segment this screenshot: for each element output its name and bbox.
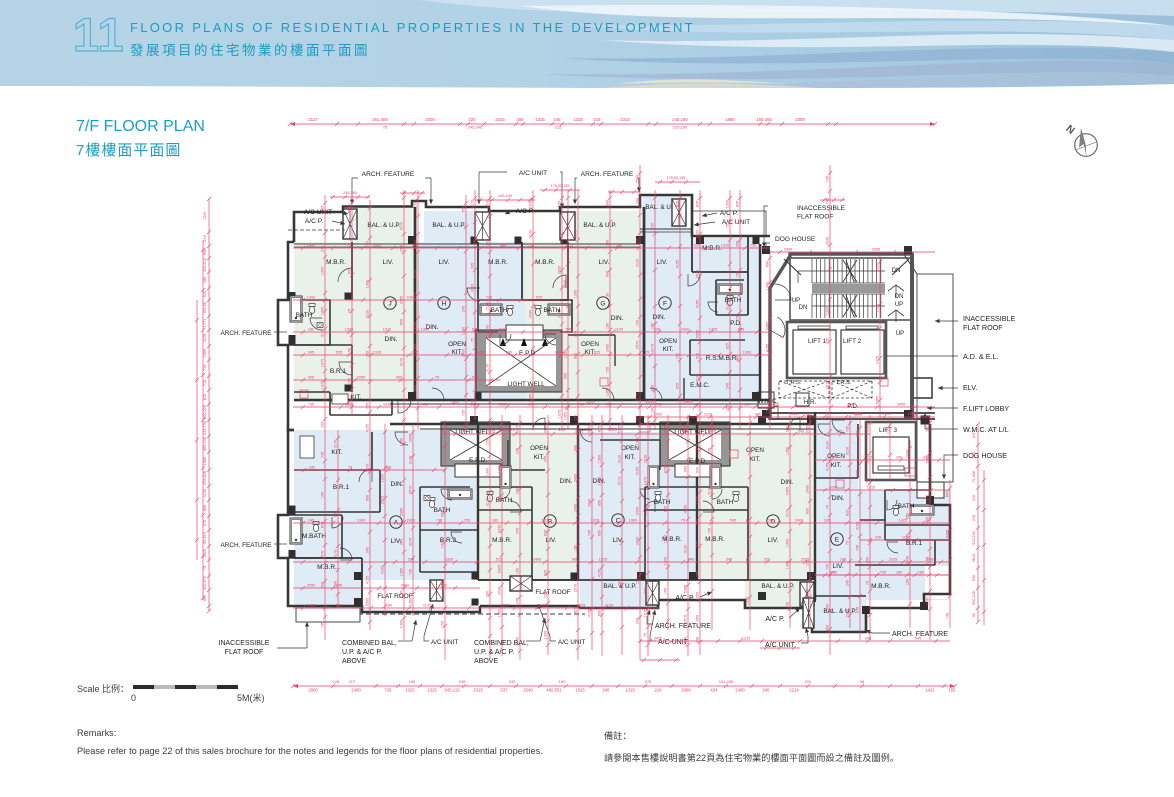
- svg-text:1350: 1350: [866, 557, 870, 565]
- svg-text:275: 275: [645, 679, 652, 684]
- svg-text:2080: 2080: [804, 413, 812, 417]
- svg-text:245: 245: [409, 679, 416, 684]
- svg-text:75: 75: [471, 338, 475, 342]
- svg-text:3455: 3455: [771, 403, 779, 407]
- svg-text:150: 150: [574, 545, 578, 551]
- svg-text:ARCH. FEATURE: ARCH. FEATURE: [581, 171, 634, 178]
- svg-text:1075: 1075: [926, 495, 930, 503]
- svg-text:545: 545: [472, 376, 478, 380]
- svg-text:3120: 3120: [486, 240, 490, 248]
- svg-text:75: 75: [846, 541, 850, 545]
- svg-text:1300: 1300: [636, 437, 640, 445]
- svg-text:3170: 3170: [334, 440, 338, 448]
- svg-text:1350: 1350: [926, 597, 930, 605]
- svg-text:A.D. & E.L.: A.D. & E.L.: [963, 352, 999, 361]
- svg-text:A/C P.: A/C P.: [720, 210, 738, 217]
- svg-text:525: 525: [606, 403, 612, 407]
- svg-text:180: 180: [308, 328, 314, 332]
- svg-text:2400: 2400: [856, 470, 860, 478]
- svg-text:537: 537: [500, 688, 508, 693]
- svg-text:1300: 1300: [381, 474, 385, 482]
- svg-text:310,410: 310,410: [203, 258, 207, 272]
- svg-text:545: 545: [472, 328, 478, 332]
- svg-text:735: 735: [409, 569, 413, 575]
- svg-text:150: 150: [636, 578, 640, 584]
- svg-text:2400: 2400: [471, 403, 479, 407]
- svg-text:75: 75: [866, 581, 870, 585]
- svg-text:525: 525: [836, 430, 842, 434]
- svg-text:2570: 2570: [636, 175, 640, 183]
- svg-text:2315: 2315: [473, 688, 483, 693]
- svg-text:3455: 3455: [897, 403, 905, 407]
- svg-text:735: 735: [528, 244, 534, 248]
- svg-text:5365: 5365: [766, 322, 770, 330]
- svg-text:LIV.: LIV.: [833, 563, 844, 570]
- svg-text:DOG HOUSE: DOG HOUSE: [775, 236, 816, 243]
- svg-text:735: 735: [856, 545, 860, 551]
- svg-text:245: 245: [654, 328, 660, 332]
- svg-text:2400: 2400: [462, 349, 466, 357]
- svg-text:5365: 5365: [498, 565, 502, 573]
- svg-text:825: 825: [708, 448, 712, 454]
- svg-text:261,408: 261,408: [372, 117, 388, 122]
- svg-text:R.S.M.B.R.: R.S.M.B.R.: [706, 355, 739, 362]
- svg-text:960: 960: [396, 376, 402, 380]
- svg-text:515: 515: [203, 291, 207, 297]
- svg-text:960: 960: [528, 403, 534, 407]
- svg-text:DIN.: DIN.: [560, 478, 573, 485]
- svg-text:3120: 3120: [696, 374, 700, 382]
- svg-text:175,50,135: 175,50,135: [550, 184, 569, 188]
- svg-text:960: 960: [385, 466, 391, 470]
- svg-text:1300: 1300: [629, 519, 637, 523]
- svg-text:245: 245: [471, 263, 475, 269]
- svg-text:2570: 2570: [321, 551, 325, 559]
- svg-text:OPEN: OPEN: [581, 341, 599, 348]
- svg-text:UP: UP: [895, 302, 903, 308]
- svg-text:180: 180: [896, 571, 902, 575]
- svg-text:1300: 1300: [498, 465, 502, 473]
- svg-text:LIV.: LIV.: [599, 259, 610, 266]
- svg-text:150: 150: [414, 201, 418, 207]
- svg-text:150: 150: [866, 426, 870, 432]
- svg-text:1300: 1300: [439, 584, 447, 588]
- svg-text:2030: 2030: [644, 455, 648, 463]
- svg-text:2030: 2030: [696, 230, 700, 238]
- svg-text:4155: 4155: [588, 609, 592, 617]
- svg-text:180: 180: [768, 519, 774, 523]
- svg-text:DIN.: DIN.: [653, 314, 666, 321]
- svg-text:1880: 1880: [725, 117, 735, 122]
- svg-text:3610: 3610: [972, 554, 976, 562]
- svg-text:2400: 2400: [516, 637, 520, 645]
- svg-text:150: 150: [736, 271, 740, 277]
- svg-text:3170: 3170: [786, 509, 790, 517]
- svg-text:1075: 1075: [321, 381, 325, 389]
- svg-text:1125: 1125: [203, 334, 207, 342]
- svg-text:4155: 4155: [636, 393, 640, 401]
- svg-text:2570: 2570: [381, 496, 385, 504]
- svg-text:2400: 2400: [574, 504, 578, 512]
- svg-text:825: 825: [544, 530, 548, 536]
- svg-text:735: 735: [656, 403, 662, 407]
- svg-text:1120: 1120: [203, 489, 207, 497]
- svg-text:FLAT ROOF: FLAT ROOF: [535, 589, 570, 596]
- svg-text:BATH: BATH: [296, 312, 313, 319]
- svg-text:905: 905: [422, 403, 428, 407]
- svg-text:735: 735: [826, 176, 830, 182]
- svg-text:245,245: 245,245: [498, 194, 512, 198]
- svg-text:3455: 3455: [450, 400, 460, 405]
- svg-text:245: 245: [308, 519, 314, 523]
- svg-text:1120: 1120: [615, 328, 623, 332]
- svg-text:900: 900: [606, 271, 610, 277]
- svg-text:225,625: 225,625: [203, 471, 207, 485]
- svg-text:DIN.: DIN.: [832, 495, 845, 502]
- svg-text:INACCESSIBLE: INACCESSIBLE: [219, 640, 270, 647]
- svg-text:2030: 2030: [498, 425, 502, 433]
- svg-text:3120: 3120: [366, 310, 370, 318]
- svg-text:825: 825: [736, 201, 740, 207]
- svg-text:650: 650: [651, 385, 655, 391]
- svg-text:1300: 1300: [400, 620, 404, 628]
- svg-text:245,700: 245,700: [203, 421, 207, 435]
- svg-text:75: 75: [435, 376, 439, 380]
- svg-text:1300: 1300: [606, 200, 610, 208]
- svg-text:735: 735: [321, 622, 325, 628]
- svg-text:245: 245: [400, 539, 404, 545]
- svg-text:245,245: 245,245: [468, 125, 483, 130]
- svg-text:825: 825: [696, 541, 700, 547]
- svg-text:F.LIFT LOBBY: F.LIFT LOBBY: [963, 404, 1009, 413]
- svg-text:735: 735: [880, 571, 886, 575]
- svg-text:2030: 2030: [826, 237, 830, 245]
- svg-text:650: 650: [946, 491, 950, 497]
- svg-text:1350: 1350: [409, 598, 413, 606]
- svg-text:5365: 5365: [946, 530, 950, 538]
- svg-text:3170: 3170: [588, 425, 592, 433]
- svg-text:A/C P.: A/C P.: [305, 218, 323, 225]
- svg-text:1075: 1075: [558, 410, 562, 418]
- svg-text:1075: 1075: [574, 230, 578, 238]
- svg-text:150: 150: [636, 416, 640, 422]
- svg-text:245: 245: [856, 607, 860, 613]
- svg-text:M.B.R.: M.B.R.: [326, 259, 346, 266]
- svg-text:725: 725: [384, 688, 392, 693]
- svg-text:525: 525: [764, 558, 770, 562]
- svg-text:G: G: [600, 300, 605, 307]
- svg-text:201: 201: [805, 679, 812, 684]
- svg-text:545: 545: [730, 519, 736, 523]
- svg-text:DIN.: DIN.: [611, 315, 624, 322]
- svg-text:T.R.S.: T.R.S.: [786, 380, 802, 386]
- svg-text:KIT.: KIT.: [663, 346, 674, 353]
- svg-text:75: 75: [203, 566, 207, 570]
- svg-text:175,50,135: 175,50,135: [666, 176, 685, 180]
- svg-text:150: 150: [606, 323, 610, 329]
- svg-text:245: 245: [726, 383, 730, 389]
- svg-text:200: 200: [736, 241, 740, 247]
- svg-text:1060: 1060: [203, 349, 207, 357]
- svg-text:1315: 1315: [577, 604, 585, 608]
- svg-text:245: 245: [516, 528, 520, 534]
- svg-text:3170: 3170: [486, 364, 490, 372]
- svg-text:1120: 1120: [704, 413, 712, 417]
- svg-text:795: 795: [883, 411, 891, 416]
- svg-text:735: 735: [588, 530, 592, 536]
- svg-text:BAL. & U.: BAL. & U.: [645, 204, 672, 211]
- svg-text:735: 735: [558, 201, 562, 207]
- svg-text:1300: 1300: [486, 468, 490, 476]
- svg-text:910,230: 910,230: [972, 531, 976, 545]
- svg-text:2127: 2127: [308, 117, 318, 122]
- svg-text:2400: 2400: [606, 344, 610, 352]
- svg-text:215: 215: [593, 117, 601, 122]
- svg-text:180: 180: [492, 519, 498, 523]
- svg-text:1325: 1325: [405, 688, 415, 693]
- svg-text:245: 245: [824, 519, 830, 523]
- svg-text:2030: 2030: [906, 450, 910, 458]
- svg-text:735: 735: [846, 426, 850, 432]
- svg-text:1300: 1300: [696, 592, 700, 600]
- svg-text:2030: 2030: [636, 537, 640, 545]
- svg-text:2400: 2400: [574, 474, 578, 482]
- svg-text:4155: 4155: [826, 463, 830, 471]
- svg-text:2030: 2030: [498, 587, 502, 595]
- svg-text:905: 905: [308, 351, 314, 355]
- svg-text:825: 825: [676, 383, 680, 389]
- svg-text:345: 345: [762, 688, 770, 693]
- svg-text:E.P.D.: E.P.D.: [689, 458, 707, 465]
- svg-text:DIN.: DIN.: [385, 336, 398, 343]
- svg-text:1315: 1315: [742, 637, 750, 641]
- svg-text:2570: 2570: [684, 615, 688, 623]
- svg-text:BAL. & U.P.: BAL. & U.P.: [432, 222, 465, 229]
- svg-text:2315: 2315: [620, 117, 630, 122]
- svg-text:2400: 2400: [499, 328, 507, 332]
- svg-text:DIN.: DIN.: [781, 479, 794, 486]
- svg-text:735: 735: [926, 426, 930, 432]
- svg-text:COMBINED BAL,: COMBINED BAL,: [474, 640, 529, 647]
- svg-text:3120: 3120: [846, 447, 850, 455]
- svg-text:150: 150: [321, 492, 325, 498]
- svg-text:245: 245: [516, 448, 520, 454]
- svg-text:545: 545: [336, 604, 342, 608]
- svg-text:1350: 1350: [826, 625, 830, 633]
- svg-text:1803: 1803: [683, 399, 693, 404]
- svg-text:900: 900: [826, 604, 830, 610]
- svg-text:245: 245: [321, 246, 325, 252]
- svg-text:2400: 2400: [407, 296, 415, 300]
- svg-text:735: 735: [464, 519, 470, 523]
- svg-text:4155: 4155: [598, 569, 602, 577]
- svg-text:1300: 1300: [664, 557, 668, 565]
- svg-text:825: 825: [696, 201, 700, 207]
- svg-text:2400: 2400: [806, 485, 810, 493]
- svg-text:F: F: [663, 300, 667, 307]
- svg-text:3170: 3170: [409, 538, 413, 546]
- svg-text:5365: 5365: [684, 585, 688, 593]
- svg-text:BATH: BATH: [898, 503, 915, 510]
- svg-text:M.B.R.: M.B.R.: [702, 245, 722, 252]
- svg-text:4155: 4155: [684, 505, 688, 513]
- svg-text:3170: 3170: [486, 498, 490, 506]
- svg-text:2080: 2080: [681, 688, 691, 693]
- svg-text:245: 245: [896, 456, 902, 460]
- svg-text:1317: 1317: [645, 399, 655, 404]
- svg-text:525: 525: [682, 430, 688, 434]
- svg-text:1350: 1350: [321, 267, 325, 275]
- svg-text:1075: 1075: [321, 359, 325, 367]
- svg-text:E.P.D.: E.P.D.: [469, 457, 487, 464]
- svg-text:600,225: 600,225: [203, 405, 207, 419]
- svg-text:150: 150: [321, 422, 325, 428]
- svg-text:525: 525: [594, 351, 600, 355]
- svg-text:A/C UNIT: A/C UNIT: [558, 639, 585, 646]
- svg-text:650: 650: [696, 615, 700, 621]
- svg-text:3335: 3335: [889, 558, 897, 562]
- svg-text:825: 825: [726, 343, 730, 349]
- svg-text:3120: 3120: [636, 259, 640, 267]
- svg-text:98: 98: [860, 679, 865, 684]
- svg-text:5365: 5365: [786, 487, 790, 495]
- svg-text:T.R.S.: T.R.S.: [836, 380, 852, 386]
- svg-text:1350: 1350: [498, 609, 502, 617]
- svg-text:150: 150: [486, 439, 490, 445]
- svg-text:3170: 3170: [400, 358, 404, 366]
- svg-text:75: 75: [347, 244, 351, 248]
- svg-text:200: 200: [618, 580, 622, 586]
- svg-text:735: 735: [826, 564, 830, 570]
- svg-text:590,245: 590,245: [972, 591, 976, 605]
- svg-text:650: 650: [766, 261, 770, 267]
- svg-text:1425: 1425: [709, 328, 717, 332]
- svg-text:200: 200: [516, 488, 520, 494]
- svg-text:735: 735: [436, 519, 442, 523]
- svg-text:2050: 2050: [307, 584, 315, 588]
- svg-text:3335: 3335: [801, 558, 809, 562]
- svg-text:2000: 2000: [425, 117, 435, 122]
- svg-text:2050: 2050: [654, 413, 662, 417]
- svg-text:2400: 2400: [307, 604, 315, 608]
- svg-text:151,455: 151,455: [719, 679, 734, 684]
- svg-text:4155: 4155: [664, 465, 668, 473]
- svg-text:3335: 3335: [607, 427, 617, 432]
- svg-text:U.P. & A/C P.: U.P. & A/C P.: [342, 649, 382, 656]
- svg-text:100,95: 100,95: [203, 302, 207, 314]
- svg-text:650: 650: [598, 610, 602, 616]
- svg-text:1300: 1300: [366, 280, 370, 288]
- svg-text:150: 150: [400, 591, 404, 597]
- svg-text:905: 905: [412, 244, 418, 248]
- svg-text:5365: 5365: [926, 517, 930, 525]
- svg-text:900: 900: [684, 466, 688, 472]
- svg-text:1350: 1350: [564, 412, 568, 420]
- svg-text:3170: 3170: [726, 302, 730, 310]
- svg-text:825: 825: [598, 426, 602, 432]
- svg-text:M.B.R.: M.B.R.: [488, 259, 508, 266]
- svg-text:3170: 3170: [321, 329, 325, 337]
- svg-text:5365: 5365: [696, 330, 700, 338]
- svg-text:ARCH. FEATURE: ARCH. FEATURE: [220, 542, 271, 549]
- svg-text:2080: 2080: [401, 584, 409, 588]
- svg-text:545: 545: [915, 637, 921, 641]
- svg-text:245: 245: [486, 325, 490, 331]
- svg-text:825: 825: [746, 558, 750, 564]
- svg-text:UP: UP: [896, 331, 904, 337]
- svg-text:3170: 3170: [558, 310, 562, 318]
- svg-text:825: 825: [676, 201, 680, 207]
- svg-text:650: 650: [806, 508, 810, 514]
- svg-text:150,265: 150,265: [756, 117, 772, 122]
- svg-text:OPEN: OPEN: [659, 338, 677, 345]
- svg-text:150: 150: [348, 378, 352, 384]
- svg-text:3170: 3170: [651, 344, 655, 352]
- svg-text:1421: 1421: [925, 688, 935, 693]
- svg-text:1115: 1115: [203, 235, 207, 243]
- svg-text:LIV.: LIV.: [383, 259, 394, 266]
- svg-text:735: 735: [544, 592, 548, 598]
- svg-text:735: 735: [321, 206, 325, 212]
- svg-text:900: 900: [574, 353, 578, 359]
- svg-text:180: 180: [918, 571, 924, 575]
- svg-text:215: 215: [555, 125, 562, 130]
- svg-text:900: 900: [696, 467, 700, 473]
- svg-text:W.M.C. AT L/L: W.M.C. AT L/L: [963, 425, 1009, 434]
- svg-text:FLAT ROOF: FLAT ROOF: [225, 649, 264, 656]
- svg-text:2030: 2030: [696, 270, 700, 278]
- svg-text:1315: 1315: [501, 604, 509, 608]
- svg-text:735: 735: [366, 351, 370, 357]
- svg-text:1350: 1350: [606, 240, 610, 248]
- svg-text:BAL. & U.P.: BAL. & U.P.: [583, 222, 616, 229]
- svg-text:M.B.R.: M.B.R.: [317, 564, 337, 571]
- svg-text:1350: 1350: [400, 438, 404, 446]
- svg-text:75,458: 75,458: [972, 471, 976, 483]
- svg-text:5365: 5365: [348, 205, 352, 213]
- svg-text:200: 200: [636, 198, 640, 204]
- svg-text:1315: 1315: [625, 688, 635, 693]
- svg-text:735: 735: [308, 403, 314, 407]
- svg-text:75: 75: [383, 125, 388, 130]
- svg-text:2400: 2400: [307, 244, 315, 248]
- svg-text:245,180: 245,180: [672, 117, 688, 122]
- svg-text:3120: 3120: [664, 425, 668, 433]
- svg-text:735: 735: [830, 456, 836, 460]
- svg-text:900: 900: [696, 353, 700, 359]
- svg-text:LIV.: LIV.: [768, 537, 779, 544]
- svg-text:BAL. & U.P.: BAL. & U.P.: [367, 222, 400, 229]
- svg-text:4155: 4155: [366, 576, 370, 584]
- svg-text:1075: 1075: [876, 356, 880, 364]
- svg-text:2030: 2030: [588, 499, 592, 507]
- svg-text:525: 525: [536, 296, 542, 300]
- svg-text:408: 408: [516, 117, 524, 122]
- svg-text:424: 424: [710, 688, 718, 693]
- svg-text:1350: 1350: [876, 304, 880, 312]
- svg-text:LIV.: LIV.: [546, 537, 557, 544]
- svg-text:4155: 4155: [381, 566, 385, 574]
- svg-text:2570: 2570: [644, 507, 648, 515]
- svg-text:1771: 1771: [203, 319, 207, 327]
- svg-text:1300: 1300: [307, 296, 315, 300]
- svg-text:2030: 2030: [846, 609, 850, 617]
- svg-text:M.B.R.: M.B.R.: [871, 583, 891, 590]
- svg-text:75: 75: [644, 633, 648, 637]
- svg-text:BATH: BATH: [717, 499, 734, 506]
- svg-text:90,510: 90,510: [203, 532, 207, 544]
- svg-text:1120: 1120: [605, 604, 613, 608]
